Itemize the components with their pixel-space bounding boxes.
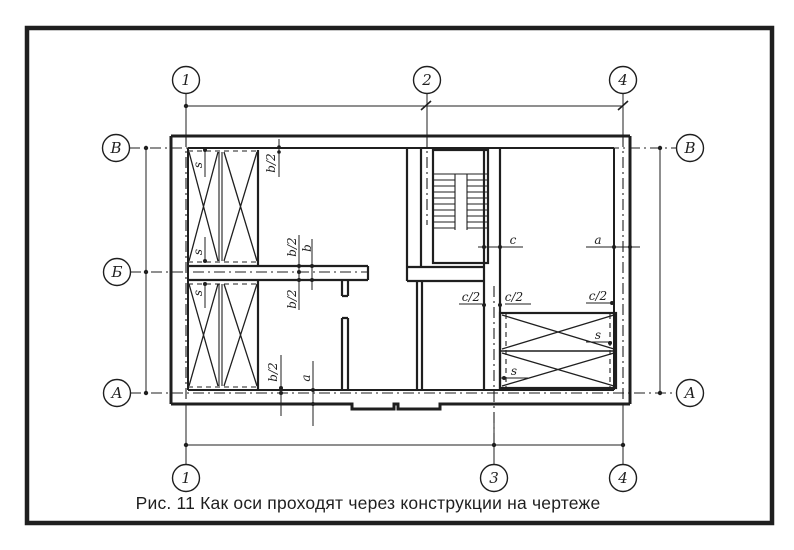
inner-wall-faces	[188, 148, 614, 390]
dim-label-s-2: s	[191, 249, 205, 255]
staircase	[433, 150, 488, 263]
axis-label-top-2: 2	[421, 71, 432, 89]
dim-label-half-b-bottom: b/2	[266, 362, 280, 381]
dim-label-b: b	[300, 244, 314, 252]
stair-treads	[434, 174, 487, 230]
drawing-ink	[103, 67, 704, 492]
hatched-wall-right	[500, 313, 616, 388]
dim-label-s-3: s	[191, 290, 205, 296]
axis-label-bottom-4: 4	[617, 469, 628, 487]
axis-label-left-a: А	[110, 384, 122, 402]
dim-label-half-b-mid-lower: b/2	[285, 289, 299, 308]
dim-label-s-4: s	[595, 328, 601, 342]
dim-label-a-top: a	[594, 233, 601, 247]
dim-label-half-b-mid-upper: b/2	[285, 237, 299, 256]
dim-label-a-bottom: a	[299, 374, 313, 381]
dim-label-s-1: s	[191, 162, 205, 168]
axis-label-right-v: В	[683, 139, 695, 157]
dim-label-half-c-2: c/2	[505, 290, 523, 304]
dim-label-half-b-top: b/2	[264, 153, 278, 172]
dim-label-half-c-1: c/2	[462, 290, 480, 304]
floor-plan-drawing: 1 2 4 1 3 4 В Б А В А s s s s s b/2 b/2 …	[0, 0, 794, 550]
figure-page: 1 2 4 1 3 4 В Б А В А s s s s s b/2 b/2 …	[0, 0, 794, 550]
axis-label-right-a: А	[683, 384, 695, 402]
dim-label-c: c	[510, 233, 517, 247]
figure-caption: Рис. 11 Как оси проходят через конструкц…	[136, 493, 601, 513]
axis-label-top-1: 1	[181, 71, 191, 89]
axis-label-left-v: В	[109, 139, 121, 157]
axis-label-left-b: Б	[110, 263, 122, 281]
dim-label-half-c-3: c/2	[589, 289, 607, 303]
hatch-cross-bracing	[189, 152, 257, 386]
hatched-wall-left	[188, 150, 258, 390]
axis-label-bottom-3: 3	[489, 469, 499, 487]
axis-label-top-4: 4	[617, 71, 628, 89]
dim-label-s-5: s	[511, 364, 517, 378]
stair-hall-walls	[407, 148, 500, 390]
axis-label-bottom-1: 1	[181, 469, 191, 487]
